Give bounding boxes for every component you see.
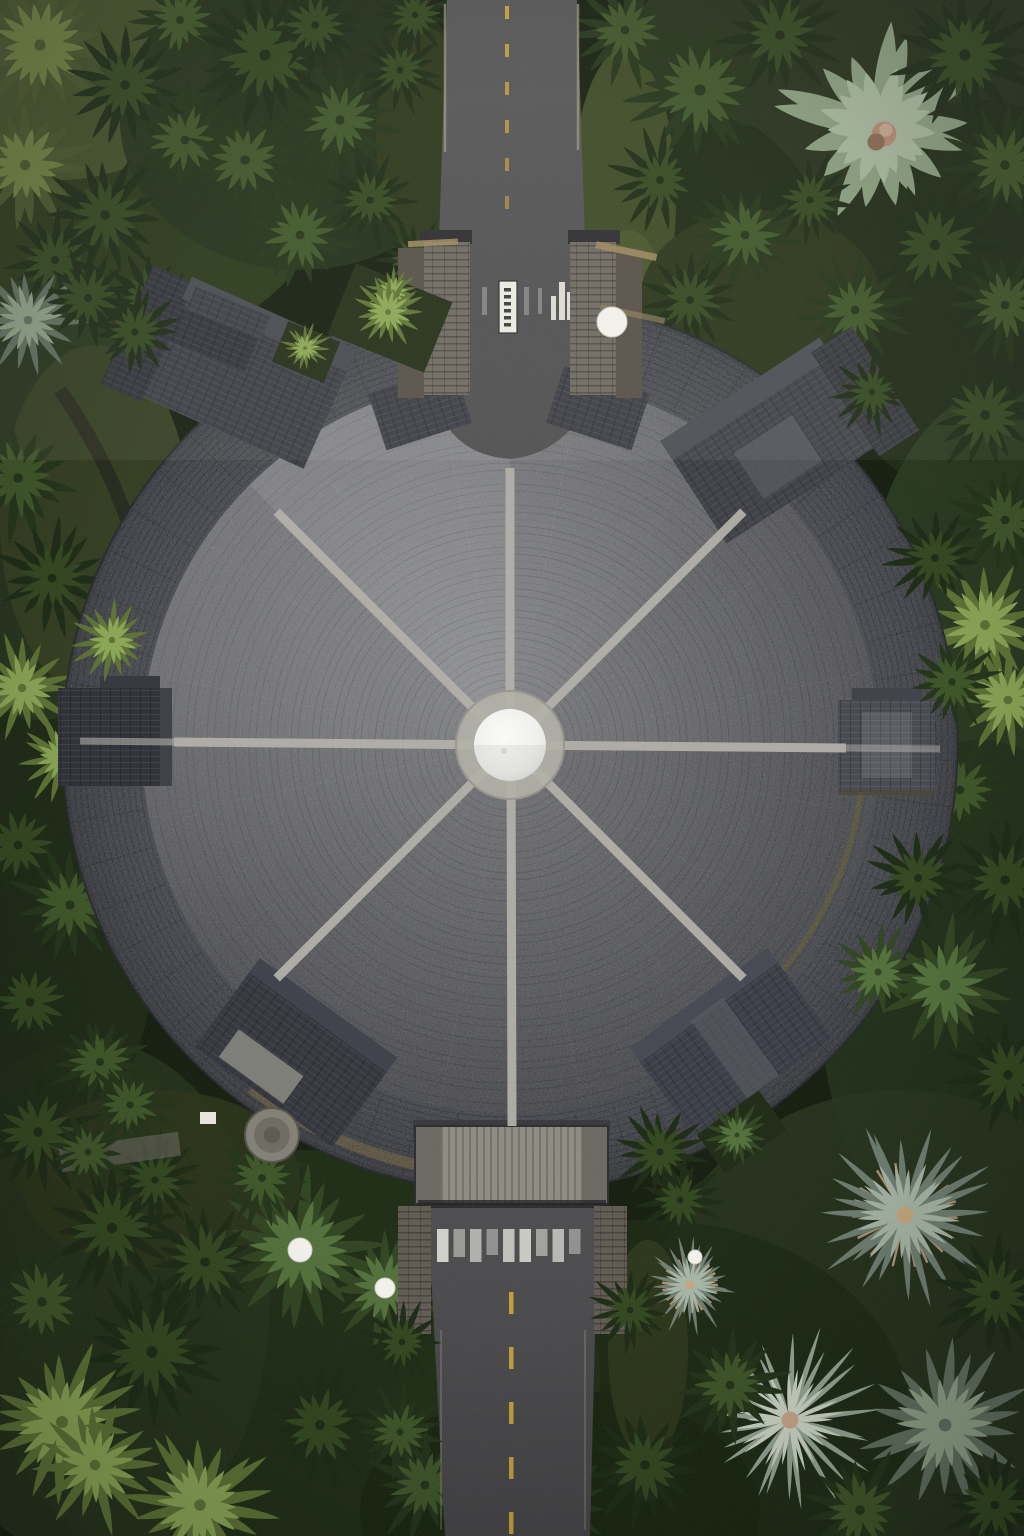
aerial-photo-circular-plaza <box>0 0 1024 1536</box>
light-overlays <box>0 0 1024 1536</box>
scene-canvas <box>0 0 1024 1536</box>
